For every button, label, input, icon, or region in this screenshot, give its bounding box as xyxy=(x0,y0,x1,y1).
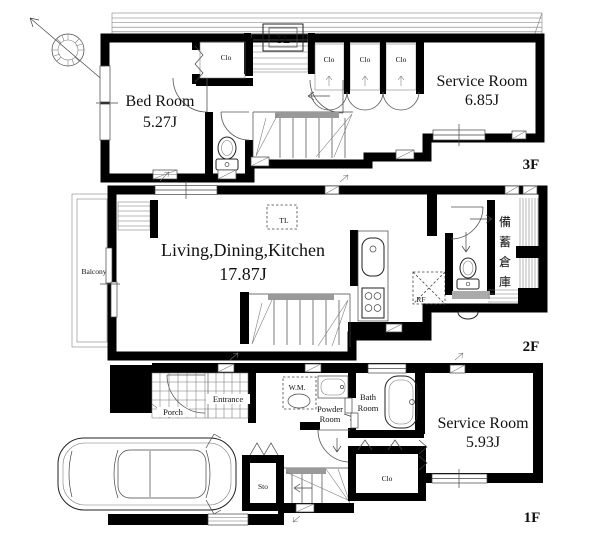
closet-1f: Clo xyxy=(352,440,427,497)
storage-1f: Sto xyxy=(246,443,280,507)
stairs-1f xyxy=(284,468,352,522)
bedroom-area: 5.27J xyxy=(143,114,177,131)
refrigerator-label: RF xyxy=(416,295,425,304)
floor-2f-plan: Balcony TL xyxy=(72,172,543,356)
floor-label-1f: 1F xyxy=(524,510,541,526)
closet-label-3: Clo xyxy=(396,55,407,64)
floor-label-3f: 3F xyxy=(523,157,540,173)
entrance-label: Entrance xyxy=(213,394,243,404)
floor-plan-document: TL Clo xyxy=(0,0,600,542)
service-room-1f-area: 5.93J xyxy=(466,434,500,451)
powder-room-label-1: Powder xyxy=(317,404,343,414)
closet-label-2: Clo xyxy=(360,55,371,64)
toplight-box-3f: TL xyxy=(263,24,303,51)
bedroom-closet-label: Clo xyxy=(221,53,232,62)
washing-machine-label: W.M. xyxy=(289,383,306,392)
bath-room-label-1: Bath xyxy=(360,392,377,402)
powder-room-label-2: Room xyxy=(320,414,341,424)
ldk-name: Living,Dining,Kitchen xyxy=(161,240,325,260)
porch-label: Porch xyxy=(163,407,184,417)
storage-char-4: 庫 xyxy=(499,275,511,289)
bedroom-name: Bed Room xyxy=(126,93,195,110)
service-room-1f-name: Service Room xyxy=(437,415,529,432)
closet-label-1: Clo xyxy=(324,55,335,64)
service-room-3f-area: 6.85J xyxy=(465,92,499,109)
bath-room-label-2: Room xyxy=(358,403,379,413)
garage-gate-1f xyxy=(208,514,248,525)
roof-band-3f xyxy=(112,13,542,36)
toplight-label-2f: TL xyxy=(279,216,289,225)
storage-char-3: 倉 xyxy=(499,254,511,269)
floor-3f-plan: TL Clo xyxy=(96,13,542,179)
car-top-view xyxy=(58,434,236,514)
hall-door-1f xyxy=(318,430,350,462)
washing-machine-1f: W.M. xyxy=(283,377,316,409)
ldk-area: 17.87J xyxy=(219,264,267,284)
balcony-label: Balcony xyxy=(82,267,107,276)
floor-1f-plan: Porch Entrance W.M. Powder Room Ba xyxy=(58,353,543,526)
bath-room-1f: Bath Room xyxy=(358,364,417,428)
storage-char-2: 蓄 xyxy=(499,235,511,249)
service-room-3f-name: Service Room xyxy=(436,73,528,90)
storage-label-1f: Sto xyxy=(258,482,268,491)
closet-label-1f: Clo xyxy=(382,474,393,483)
porch-1f: Porch xyxy=(152,373,208,418)
storage-char-1: 備 xyxy=(499,214,511,229)
floor-plan-svg: TL Clo xyxy=(0,0,600,542)
bathtub-icon xyxy=(385,376,417,428)
toplight-label-3f: TL xyxy=(276,32,291,46)
floor-label-2f: 2F xyxy=(523,339,540,355)
